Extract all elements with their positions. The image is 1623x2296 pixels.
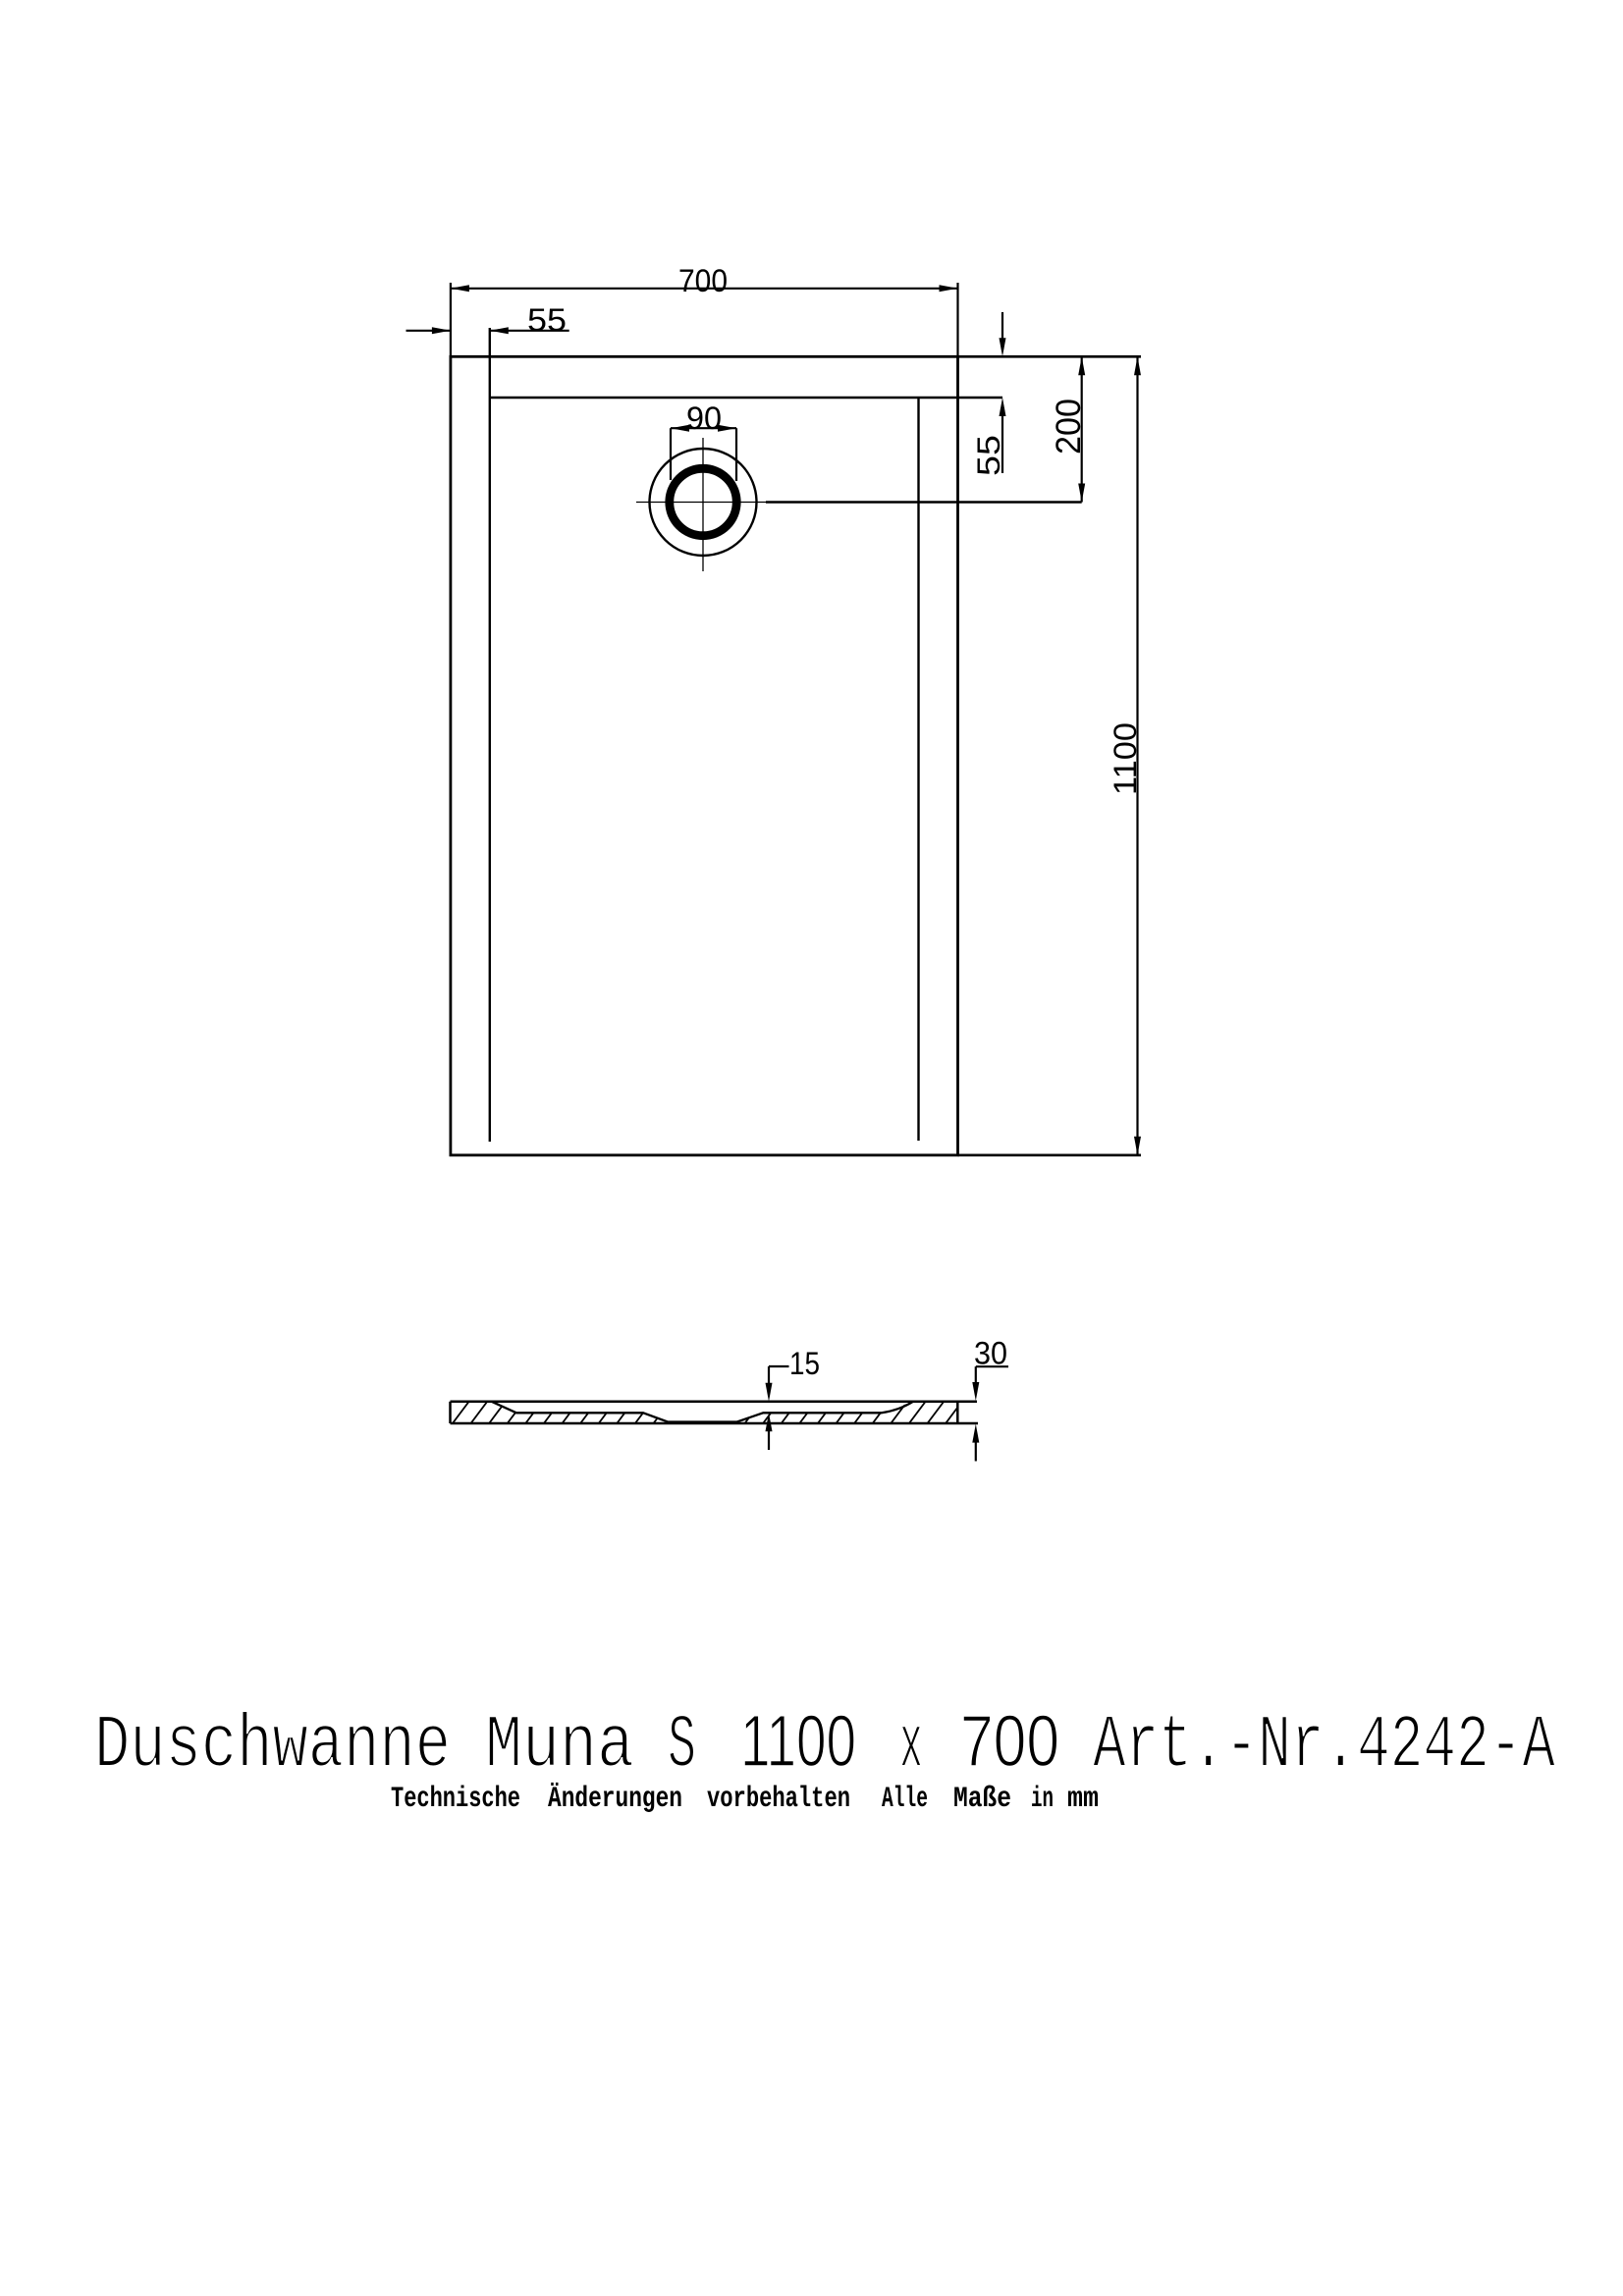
svg-text:mm: mm [1067, 1783, 1099, 1816]
svg-text:Technische: Technische [391, 1783, 520, 1816]
svg-text:S: S [668, 1704, 696, 1789]
svg-text:55: 55 [527, 302, 567, 338]
svg-text:30: 30 [974, 1336, 1007, 1371]
svg-text:Art.-Nr.4242-A: Art.-Nr.4242-A [1093, 1704, 1556, 1789]
svg-text:x: x [899, 1704, 923, 1789]
svg-text:90: 90 [686, 400, 722, 436]
svg-text:vorbehalten: vorbehalten [707, 1783, 850, 1816]
svg-text:1100: 1100 [740, 1700, 856, 1782]
svg-text:1100: 1100 [1108, 722, 1143, 795]
svg-text:Maße: Maße [953, 1783, 1011, 1816]
svg-text:15: 15 [789, 1346, 820, 1381]
svg-text:700: 700 [678, 263, 728, 298]
svg-text:Änderungen: Änderungen [548, 1782, 682, 1816]
svg-text:Alle: Alle [882, 1783, 928, 1816]
svg-text:200: 200 [1050, 399, 1088, 454]
svg-text:Duschwanne: Duschwanne [94, 1704, 451, 1789]
svg-text:Muna: Muna [485, 1704, 634, 1789]
svg-text:700: 700 [960, 1700, 1059, 1782]
svg-text:55: 55 [971, 435, 1006, 476]
svg-text:in: in [1031, 1783, 1054, 1816]
